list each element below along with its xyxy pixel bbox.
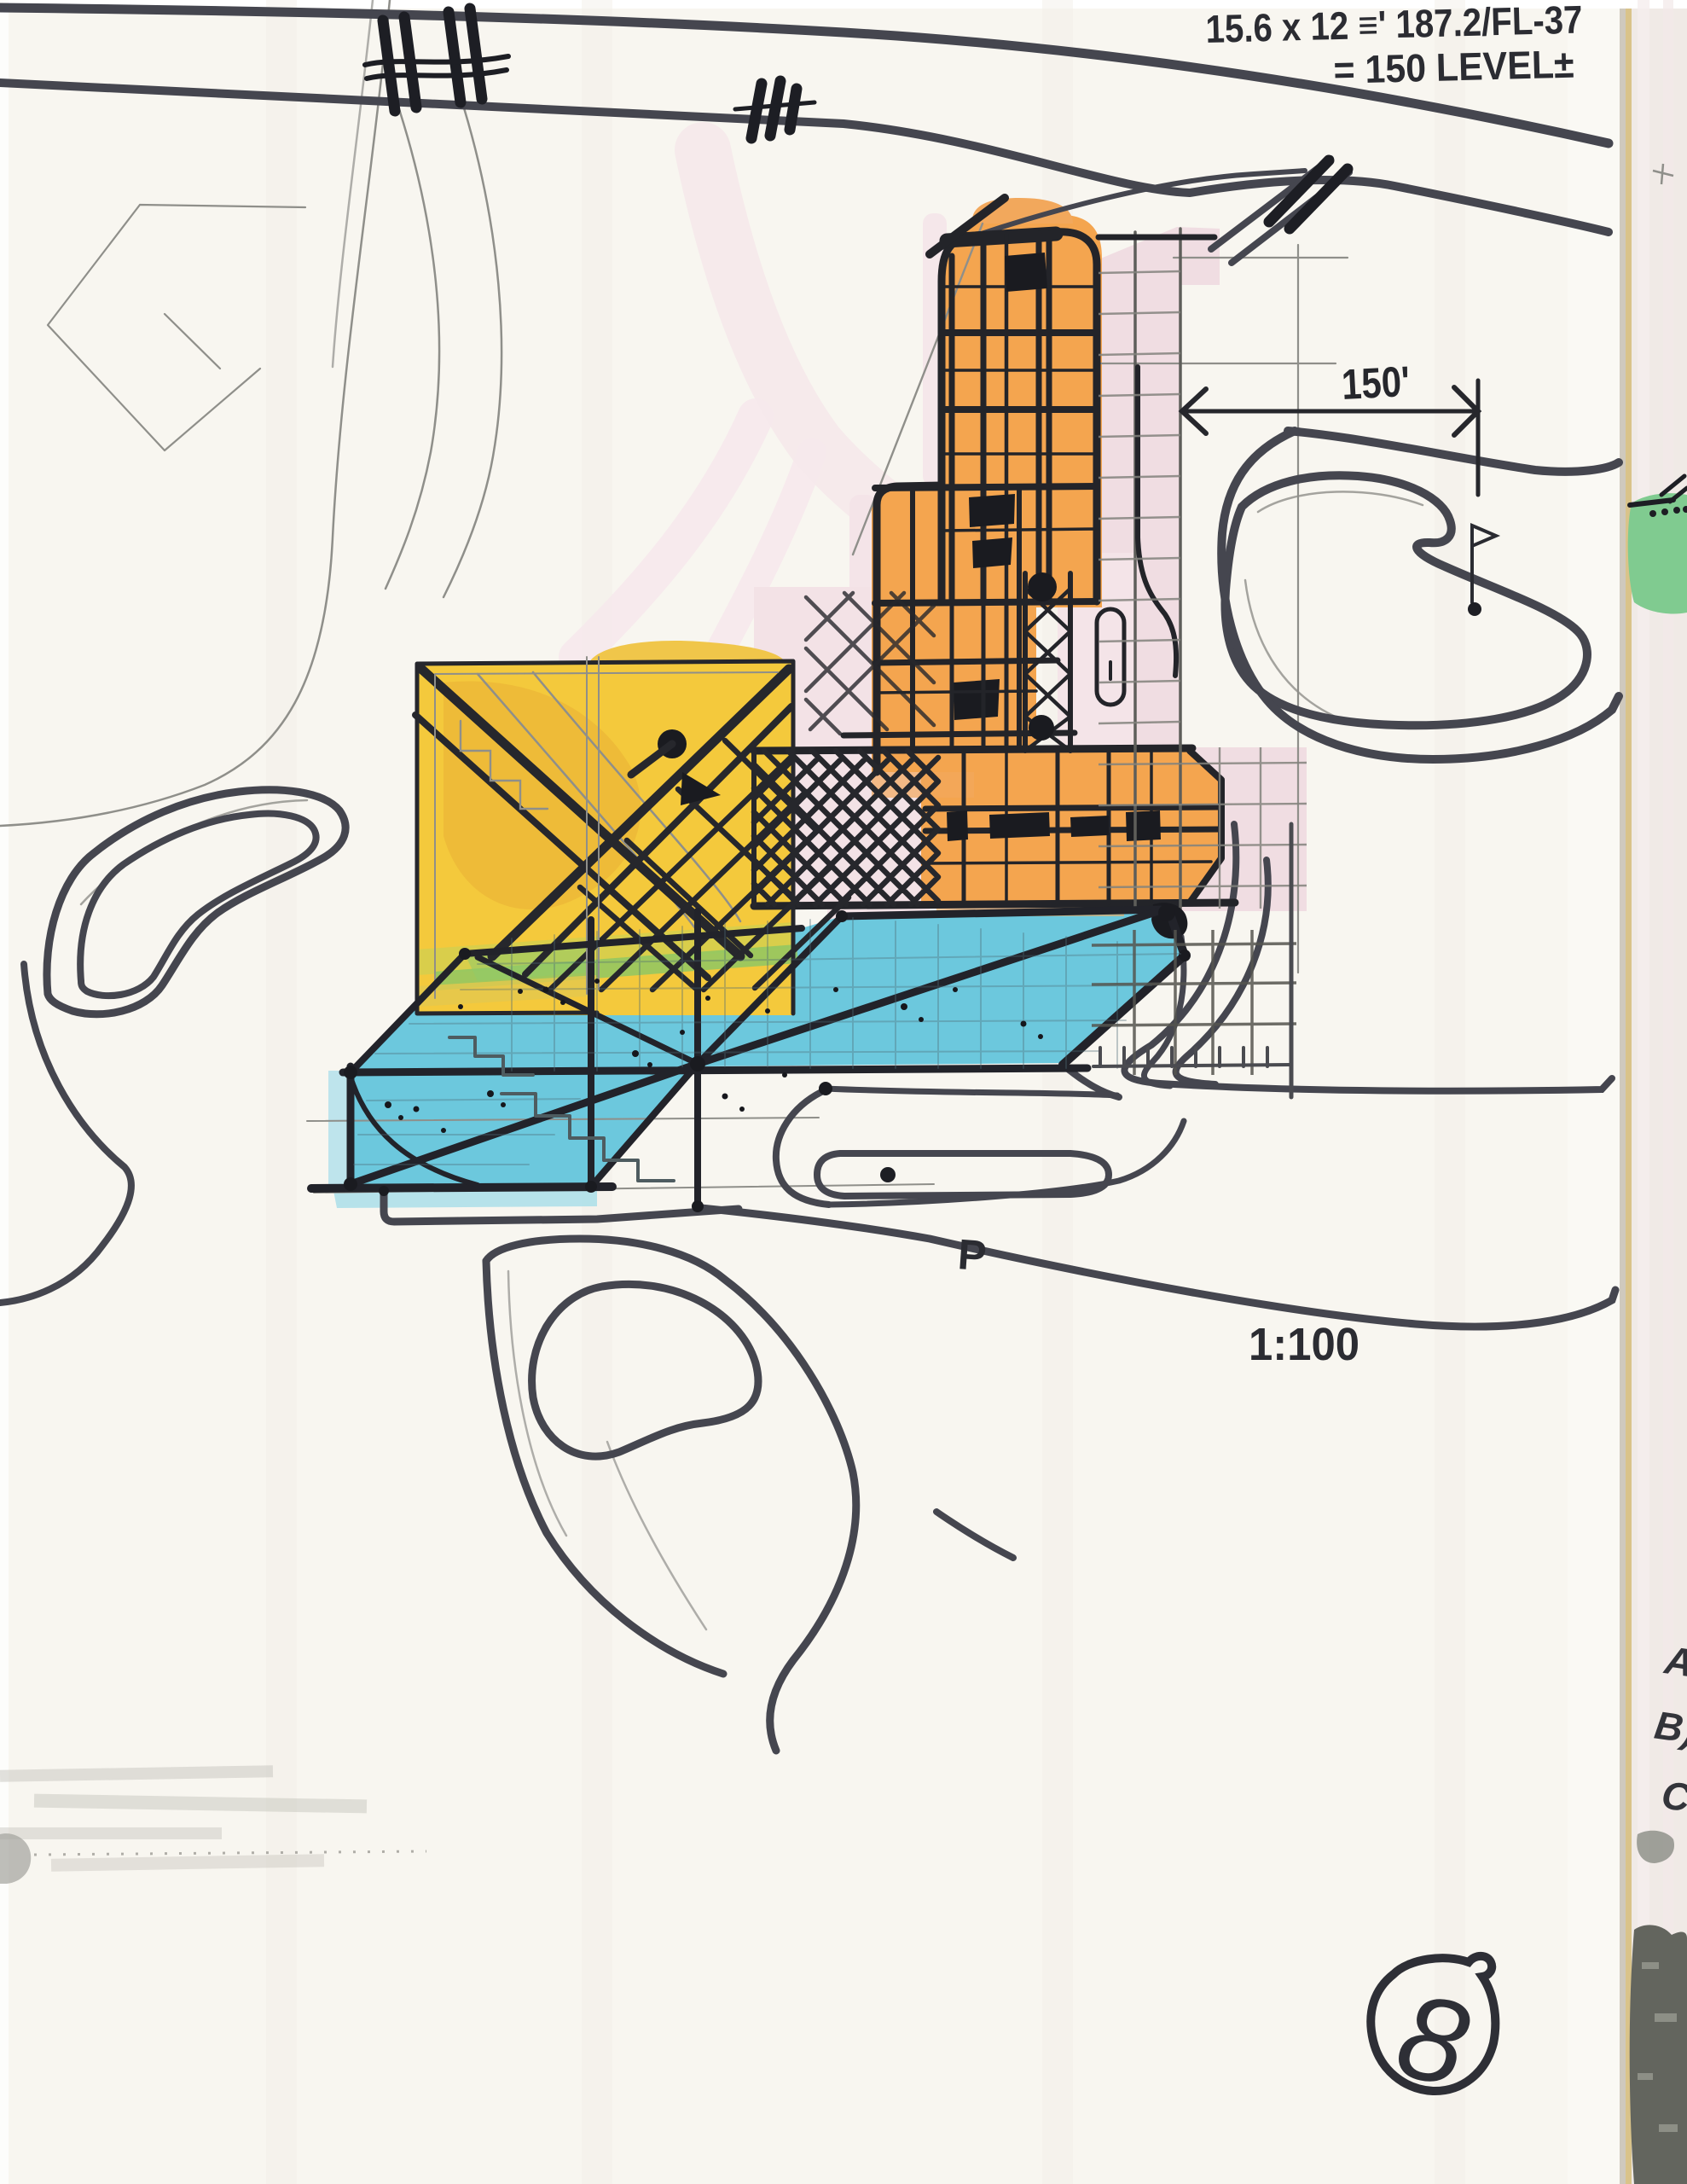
svg-text:150': 150' <box>1341 357 1412 409</box>
svg-text:1:100: 1:100 <box>1249 1319 1359 1370</box>
svg-text:= 150 LEVEL±: = 150 LEVEL± <box>1333 42 1574 92</box>
svg-text:B): B) <box>1652 1703 1687 1752</box>
svg-text:P: P <box>956 1230 988 1280</box>
